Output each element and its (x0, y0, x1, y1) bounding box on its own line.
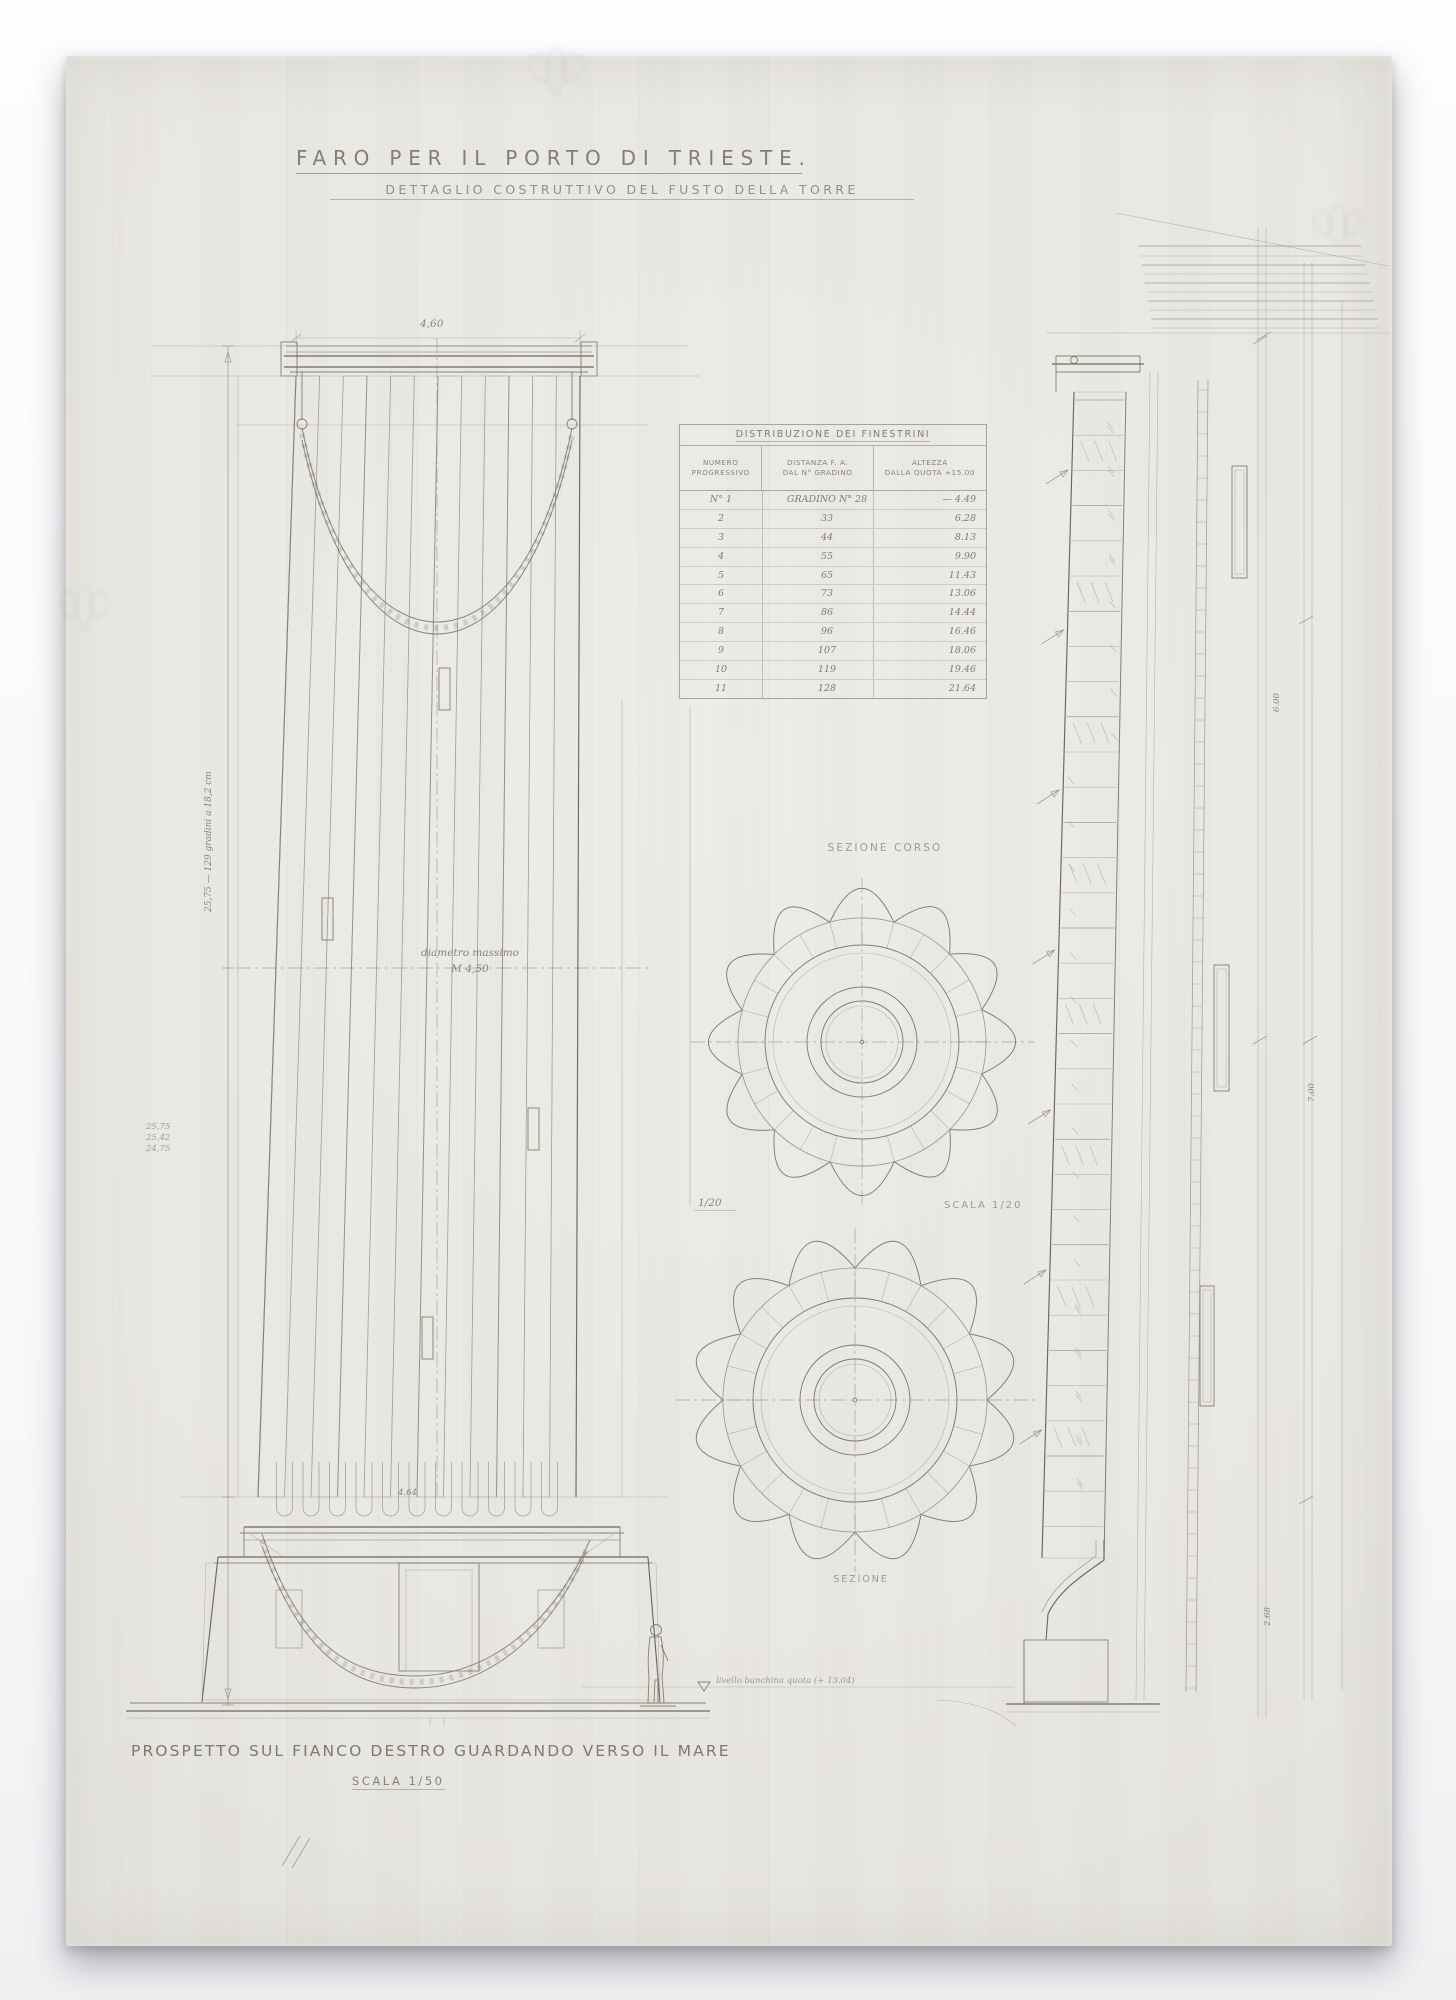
table-row: 78614.44 (680, 604, 986, 623)
table-cell: 8.13 (873, 529, 986, 547)
table-column-header: DISTANZA F. A. DAL N° GRADINO (761, 446, 872, 490)
table-cell: 96 (762, 623, 873, 641)
table-row: 89616.46 (680, 623, 986, 642)
steps-count-note: 25,75 — 129 gradini a 18,2 cm (204, 771, 214, 912)
table-cell: 33 (762, 510, 873, 528)
table-row: 56511.43 (680, 567, 986, 586)
table-row: 4559.90 (680, 548, 986, 567)
table-row: 1112821.64 (680, 680, 986, 698)
top-width-dimension: 4,60 (420, 318, 443, 330)
table-cell: 128 (762, 680, 873, 698)
table-row: 2336.28 (680, 510, 986, 529)
table-cell: 44 (762, 529, 873, 547)
table-cell: 73 (762, 585, 873, 603)
elevation-caption: PROSPETTO SUL FIANCO DESTRO GUARDANDO VE… (131, 1742, 731, 1760)
sea-level-note: livello banchina quota (+ 13.04) (716, 1676, 855, 1686)
table-cell: 19.46 (873, 661, 986, 679)
tower-pedestal (126, 1527, 710, 1726)
table-cell: 5 (680, 567, 762, 585)
technical-drawing-canvas (0, 0, 1456, 2000)
table-cell: 86 (762, 604, 873, 622)
table-row: N° 1GRADINO N° 28— 4.49 (680, 491, 986, 510)
corner-hatch-lines (1046, 213, 1390, 333)
windows-distribution-table: DISTRIBUZIONE DEI FINESTRINI NUMERO PROG… (679, 424, 987, 699)
table-cell: N° 1 (680, 491, 762, 509)
wall-section (1020, 356, 1247, 1700)
lower-plan-label: SEZIONE (806, 1574, 916, 1585)
table-cell: 9.90 (873, 548, 986, 566)
table-row: 3448.13 (680, 529, 986, 548)
table-cell: 18.06 (873, 642, 986, 660)
table-cell: 16.46 (873, 623, 986, 641)
max-diameter-note: diametro massimo (385, 947, 555, 959)
plan-scale-right: SCALA 1/20 (944, 1200, 1022, 1211)
left-dimension-line (222, 346, 690, 1868)
table-cell: 11.43 (873, 567, 986, 585)
table-cell: 6.28 (873, 510, 986, 528)
upper-plan-label: SEZIONE CORSO (800, 842, 970, 854)
section-dim-mid: 7.00 (1307, 1083, 1317, 1102)
section-dim-top: 6.00 (1272, 693, 1282, 712)
table-title: DISTRIBUZIONE DEI FINESTRINI (680, 425, 986, 446)
windows-table-body: N° 1GRADINO N° 28— 4.492336.283448.13455… (680, 491, 986, 698)
plan-section-lower (675, 1228, 1035, 1572)
margin-level-numbers: 25,7525,4224,75 (146, 1122, 170, 1155)
table-cell: 7 (680, 604, 762, 622)
tower-elevation (150, 330, 700, 1516)
table-header: NUMERO PROGRESSIVO DISTANZA F. A. DAL N°… (680, 446, 986, 491)
table-cell: 65 (762, 567, 873, 585)
table-cell: 107 (762, 642, 873, 660)
table-cell: 10 (680, 661, 762, 679)
table-cell: 9 (680, 642, 762, 660)
table-cell: 8 (680, 623, 762, 641)
drawing-subtitle: DETTAGLIO COSTRUTTIVO DEL FUSTO DELLA TO… (330, 182, 914, 200)
table-row: 67313.06 (680, 585, 986, 604)
right-dimension-lines (1253, 228, 1342, 1718)
table-column-header: NUMERO PROGRESSIVO (680, 446, 761, 490)
table-cell: 11 (680, 680, 762, 698)
table-cell: 14.44 (873, 604, 986, 622)
table-cell: 6 (680, 585, 762, 603)
table-cell: 55 (762, 548, 873, 566)
table-column-header: ALTEZZA DALLA QUOTA +15.00 (873, 446, 986, 490)
table-cell: 2 (680, 510, 762, 528)
scanned-drawing-page: FARO PER IL PORTO DI TRIESTE. DETTAGLIO … (0, 0, 1456, 2000)
table-cell: 3 (680, 529, 762, 547)
max-diameter-value: M 4,50 (385, 963, 555, 975)
water-level-marker (582, 1682, 1016, 1726)
table-cell: — 4.49 (873, 491, 986, 509)
table-cell: GRADINO N° 28 (762, 491, 873, 509)
table-row: 910718.06 (680, 642, 986, 661)
drawing-title: FARO PER IL PORTO DI TRIESTE. (296, 146, 802, 174)
table-cell: 4 (680, 548, 762, 566)
plan-scale-left: 1/20 (694, 1197, 736, 1211)
table-cell: 13.06 (873, 585, 986, 603)
table-cell: 119 (762, 661, 873, 679)
plan-section-upper (690, 878, 1034, 1206)
ladder (1186, 380, 1208, 1692)
base-width-dimension: 4.64 (398, 1488, 417, 1498)
human-figure-silhouette (640, 1625, 676, 1707)
section-dim-bottom: 2.68 (1263, 1607, 1273, 1626)
elevation-scale-note: SCALA 1/50 (352, 1774, 445, 1790)
table-cell: 21.64 (873, 680, 986, 698)
table-row: 1011919.46 (680, 661, 986, 680)
